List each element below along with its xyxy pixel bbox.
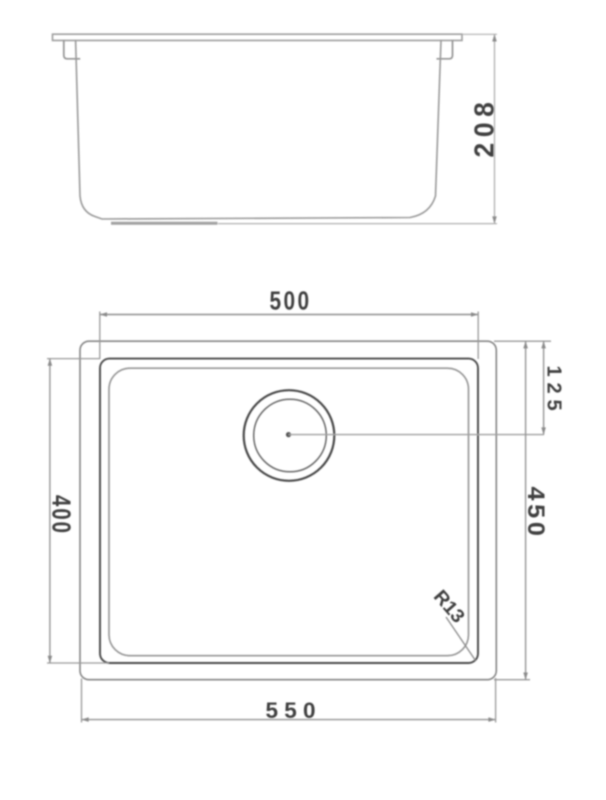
svg-text:500: 500 bbox=[270, 286, 312, 316]
svg-text:400: 400 bbox=[47, 495, 77, 535]
svg-text:450: 450 bbox=[522, 487, 549, 540]
svg-text:125: 125 bbox=[543, 366, 566, 417]
svg-text:550: 550 bbox=[266, 698, 316, 723]
svg-text:208: 208 bbox=[469, 97, 500, 158]
